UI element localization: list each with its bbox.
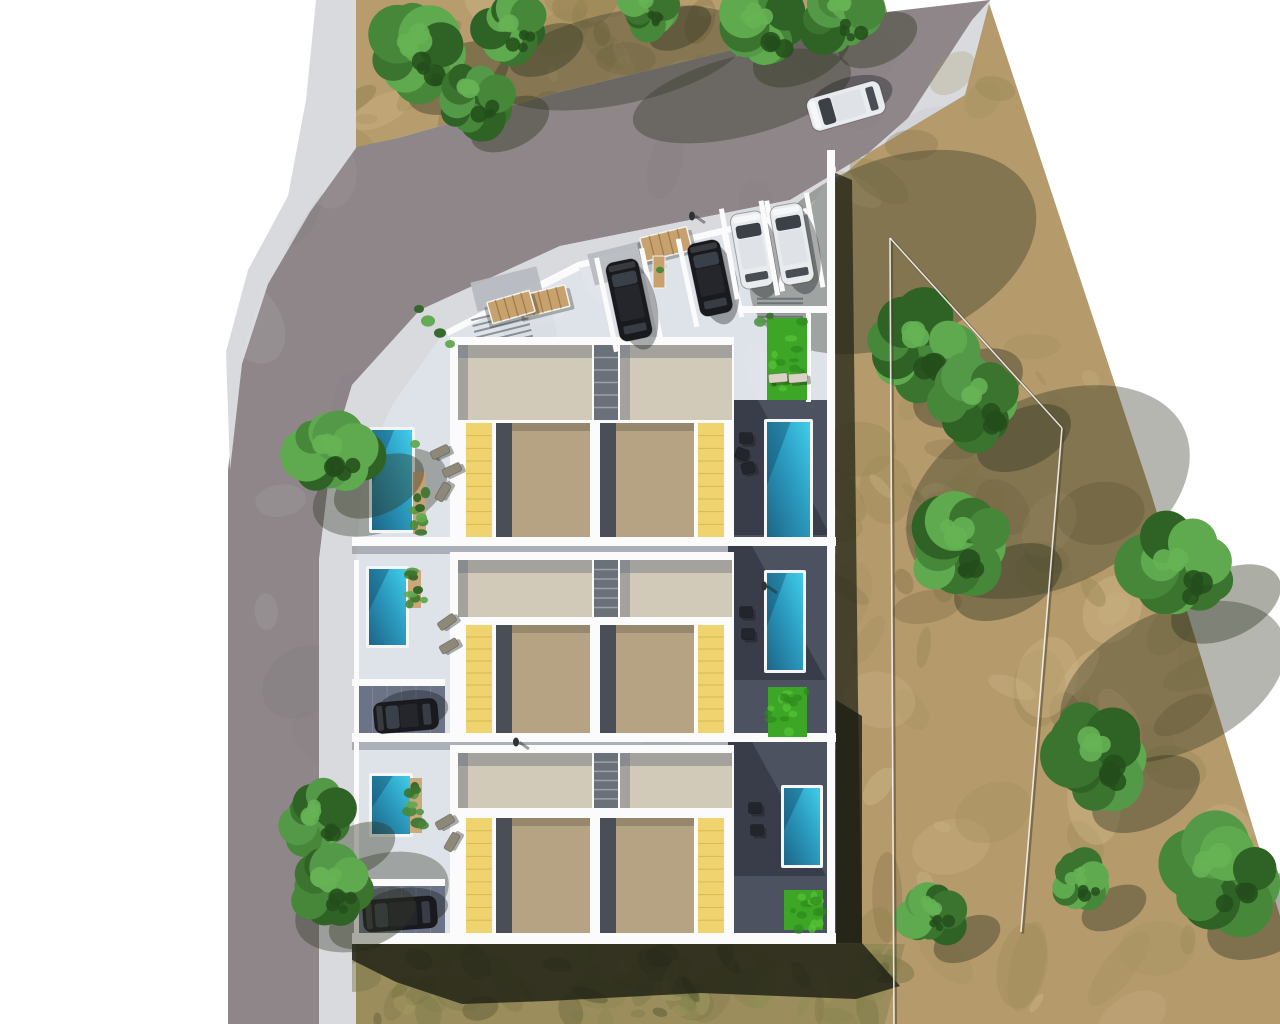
mottle [1182,218,1210,235]
tree-dark-spot [1237,883,1258,904]
tree-dark-spot [775,39,794,58]
housing-row-1 [450,337,734,545]
tree-highlight [1207,847,1228,868]
lounger-body [742,629,755,640]
grass-tuft [797,911,808,918]
grass-tuft [765,716,777,723]
tree-dark-spot [982,403,1001,422]
yellow-deck [698,423,724,537]
grass-tuft [803,688,809,695]
mottle [1129,311,1173,345]
grass-tuft [764,710,772,716]
patio-step-left [496,818,512,933]
lounger-body [768,373,788,384]
planter-shrub [406,801,418,808]
tree-highlight [307,800,320,813]
block-south-wall [352,933,836,944]
ground-patio-right [616,818,694,933]
person [513,738,519,747]
patio-step-right [600,423,616,537]
ground-patio-left [512,818,590,933]
mottle [1125,316,1161,361]
tree-highlight [1076,874,1087,885]
planter-shrub [405,600,413,609]
tree-dark-spot [417,61,430,74]
terrace-shadow-n [620,753,732,766]
porch-wall-middle [352,679,445,686]
grass-tuft [791,346,803,353]
tree-dark-spot [339,904,348,913]
terrace-shadow-n [620,560,732,573]
terrace-shadow-w [458,753,468,808]
mottle [1240,82,1266,111]
lawn-east-1 [767,318,807,400]
shrub [754,317,766,327]
tree-highlight [400,40,417,57]
mottle [1203,3,1236,28]
tree-dark-spot [519,30,529,40]
person [761,582,767,591]
patio-step-right [600,818,616,933]
shrub [414,305,424,313]
patio-divider-wall [590,818,600,933]
mottle [1145,354,1179,400]
mottle [1144,140,1222,192]
shrub [415,504,425,512]
patio-divider-wall [590,625,600,733]
ground-patio-right [616,625,694,733]
grass-tuft [792,694,802,701]
tree-lobe [314,787,356,829]
patio-step-right [600,625,616,733]
tree-highlight [940,519,955,534]
grass-tuft [789,358,799,362]
tree-dark-spot [324,457,344,477]
terrace-shadow-n [458,560,592,573]
tree-highlight [902,327,923,348]
yellow-deck [466,818,492,933]
tree-dark-spot [840,26,850,36]
terrace-shadow-n [458,753,592,766]
row-divider-wall-2 [352,733,836,742]
car-windshield [385,705,400,729]
garden-wall-northeast [742,306,835,313]
yellow-deck [698,625,724,733]
block-east-wall [827,150,835,940]
car-rear-window [421,901,431,924]
shrub [411,786,421,794]
ground-patio-left [512,423,590,537]
grass-tuft [780,693,789,701]
mottle [1192,127,1223,151]
patio-shadow [616,818,694,826]
ground-patio-right [616,423,694,537]
grass-tuft [779,386,788,391]
tree-highlight [470,84,480,94]
planter-shrub [417,821,429,829]
tree-dark-spot [1091,887,1100,896]
tree-dark-spot [328,888,345,905]
grass-tuft [796,318,808,326]
mottle [1139,268,1220,352]
tree-highlight [964,387,982,405]
mottle [1239,348,1256,359]
grass-tuft [784,727,794,736]
tree-dark-spot [647,11,655,19]
shrub [410,440,420,448]
terrace-shadow-w [620,753,630,808]
terrace-shadow-w [458,560,468,617]
row-divider-wall-1 [352,537,836,546]
mottle [1187,252,1279,325]
shrub [421,315,435,326]
mottle [1209,259,1274,296]
planter-shrub [410,520,418,530]
housing-row-3 [450,745,734,941]
mottle [1216,291,1280,391]
shrub [420,597,428,603]
tree-highlight [1171,549,1188,566]
tree-dark-spot [929,919,937,927]
tree-highlight [745,12,762,29]
patio-shadow [512,625,590,633]
grass-tuft [816,907,827,916]
mottle [1179,418,1272,501]
shrub [766,313,774,319]
mottle [1180,126,1212,171]
patio-shadow [616,625,694,633]
terrace-shadow-w [458,345,468,420]
planter-shrub [421,487,431,498]
mottle [1213,182,1240,208]
yellow-deck [466,625,492,733]
site-plan-canvas [0,0,1280,1024]
tree-dark-spot [1183,570,1203,590]
tree-dark-spot [942,915,955,928]
car-roof [399,703,419,727]
tree-dark-spot [1182,588,1199,605]
grass-tuft [789,711,798,718]
terrace-shadow-n [458,345,592,358]
yellow-deck [698,818,724,933]
grass-tuft [797,894,806,901]
shrub [445,340,455,348]
tree-dark-spot [1078,885,1088,895]
housing-row-2 [450,552,734,741]
grass-tuft [785,335,797,342]
grass-tuft [768,360,777,369]
car-roof [738,236,768,270]
patio-shadow [616,423,694,431]
aerial-site-plan [0,0,1280,1024]
patio-step-left [496,423,512,537]
grass-tuft [794,924,804,934]
planter-shrub [404,570,417,577]
planter-shrub [416,513,427,522]
tree-dark-spot [324,823,338,837]
tree-dark-spot [1107,772,1126,791]
tree-dark-spot [652,18,660,26]
tree-highlight [923,899,938,914]
tree-dark-spot [966,560,984,578]
terrace-shadow-w [620,345,630,420]
ground-patio-left [512,625,590,733]
mottle [1011,51,1027,71]
grass-tuft [780,716,790,721]
person [689,212,695,221]
mottle [1163,0,1218,33]
tree-dark-spot [430,73,443,86]
tree-dark-spot [854,26,868,40]
tree-highlight [312,434,332,454]
tree-dark-spot [1216,895,1234,913]
patio-shadow [512,818,590,826]
tree-dark-spot [345,892,357,904]
tree-highlight [1192,860,1210,878]
mottle [1209,410,1280,510]
planter-shrub [413,493,421,502]
shrub [656,267,664,273]
patio-step-left [496,625,512,733]
mottle [1099,242,1122,261]
patio-shadow [512,423,590,431]
tree-dark-spot [484,110,492,118]
lounger-body [751,825,764,836]
tree-dark-spot [506,37,520,51]
patio-divider-wall [590,423,600,537]
grass-tuft [808,924,816,933]
grass-tuft [790,908,796,913]
grass-tuft [783,703,792,712]
mottle [1112,0,1211,83]
lounger-body [788,373,808,384]
lounger-body [740,607,753,618]
yellow-deck [466,423,492,537]
shrub [413,586,423,594]
tree-highlight [1077,726,1100,749]
grass-tuft [771,351,777,359]
planter-shrub [415,529,427,536]
mottle [1259,446,1280,510]
lounger-body [740,433,753,444]
mottle [1220,119,1240,147]
shrub [416,809,424,815]
terrace-shadow-w [620,560,630,617]
shrub [434,328,446,338]
grass-tuft [810,897,822,906]
tree-highlight [310,867,331,888]
lounger-body [749,803,762,814]
tree-highlight [501,14,519,32]
